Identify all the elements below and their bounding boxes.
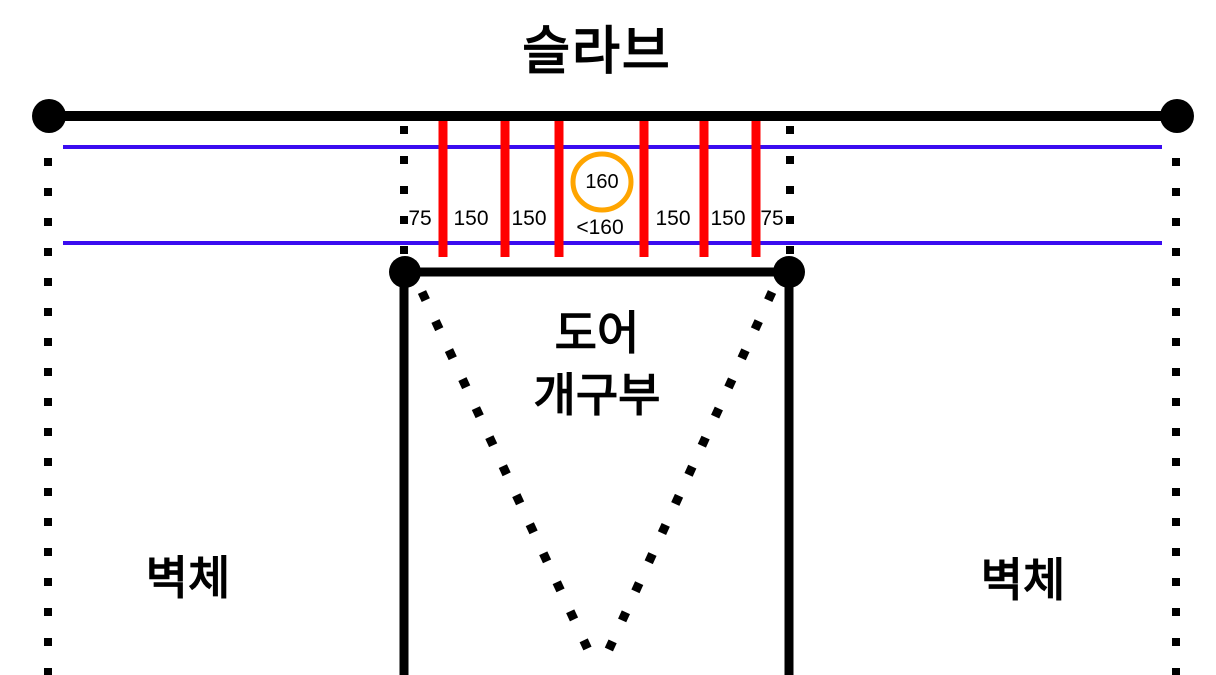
spacing-label: 150 <box>643 207 703 231</box>
spacing-label: 75 <box>396 207 444 231</box>
rebar-spacing-diagram: 슬라브 75 150 150 <160 150 150 75 160 도어 개구… <box>0 0 1216 675</box>
door-anchor-dot-right <box>773 256 805 288</box>
spacing-label-center-gap: <160 <box>558 216 642 240</box>
spacing-label: 150 <box>499 207 559 231</box>
door-opening-label-line1: 도어 <box>405 302 789 364</box>
slab-anchor-dot-left <box>32 99 66 133</box>
wall-label-left: 벽체 <box>88 551 288 605</box>
wall-label-right: 벽체 <box>923 553 1123 607</box>
door-anchor-dot-left <box>389 256 421 288</box>
slab-title: 슬라브 <box>0 22 1194 82</box>
spacing-label: 150 <box>441 207 501 231</box>
door-opening-label-line2: 개구부 <box>405 364 789 426</box>
door-opening-label: 도어 개구부 <box>405 302 789 426</box>
spacing-label: 75 <box>748 207 796 231</box>
spacing-circle-value: 160 <box>570 170 634 194</box>
slab-anchor-dot-right <box>1160 99 1194 133</box>
